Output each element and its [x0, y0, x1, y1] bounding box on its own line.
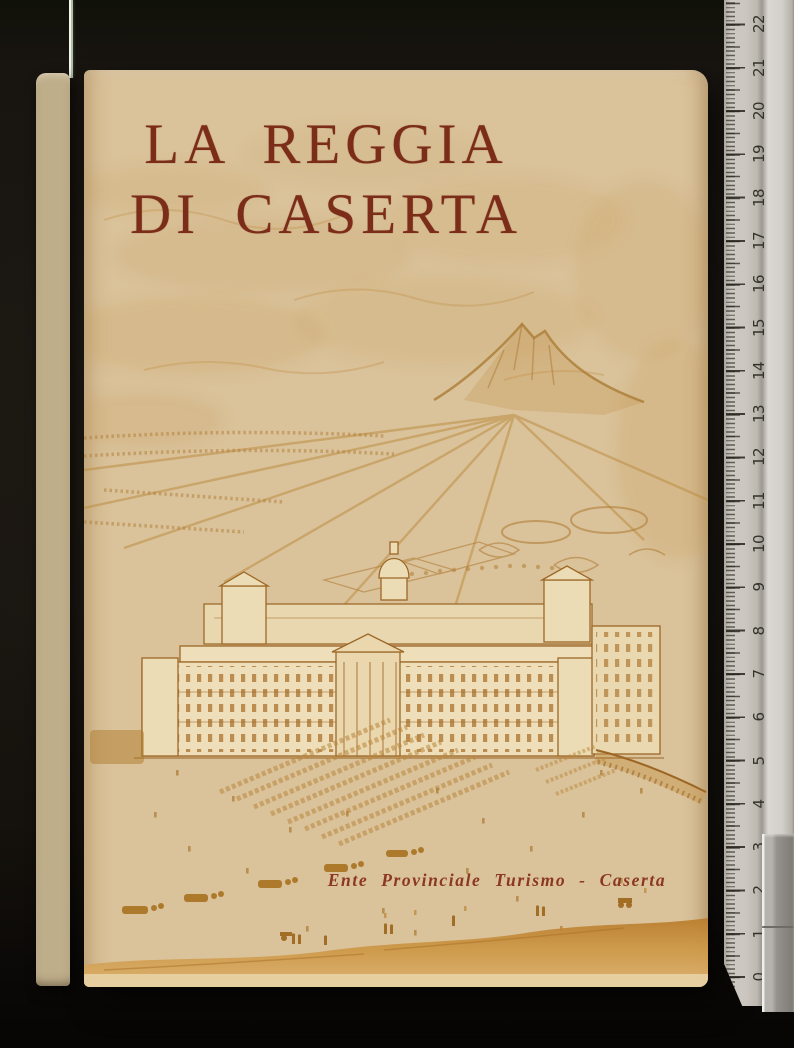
- ruler-number: 14: [750, 356, 768, 386]
- ruler-number: 22: [750, 9, 768, 39]
- ruler-number: 13: [750, 399, 768, 429]
- ruler-number: 4: [750, 789, 768, 819]
- ruler-number: 18: [750, 183, 768, 213]
- clamp-screw-bottom: [0, 0, 27, 27]
- photo-scene: LA REGGIA DI CASERTA Ente Provinciale Tu…: [0, 0, 794, 1048]
- ruler-number: 10: [750, 529, 768, 559]
- ruler-number: 17: [750, 226, 768, 256]
- ruler-number: 20: [750, 96, 768, 126]
- ruler-number: 16: [750, 269, 768, 299]
- ruler-number: 6: [750, 702, 768, 732]
- ruler-number: 12: [750, 442, 768, 472]
- ruler-cm-ticks: [726, 0, 745, 990]
- book-cover: LA REGGIA DI CASERTA Ente Provinciale Tu…: [84, 70, 708, 987]
- ruler-number: 19: [750, 139, 768, 169]
- book-spine: [36, 73, 70, 986]
- ruler-number: 21: [750, 53, 768, 83]
- ruler-number: 9: [750, 572, 768, 602]
- ruler-number: 7: [750, 659, 768, 689]
- book-title: LA REGGIA DI CASERTA: [126, 110, 526, 250]
- ruler-clamp: [762, 834, 794, 1012]
- stand-rod: [69, 0, 73, 78]
- title-line-2: DI CASERTA: [126, 180, 526, 250]
- ruler-number: 15: [750, 313, 768, 343]
- ruler-number: 5: [750, 746, 768, 776]
- title-line-1: LA REGGIA: [126, 110, 526, 180]
- ruler-number: 11: [750, 486, 768, 516]
- publisher-imprint: Ente Provinciale Turismo - Caserta: [312, 870, 682, 891]
- ruler-number: 8: [750, 616, 768, 646]
